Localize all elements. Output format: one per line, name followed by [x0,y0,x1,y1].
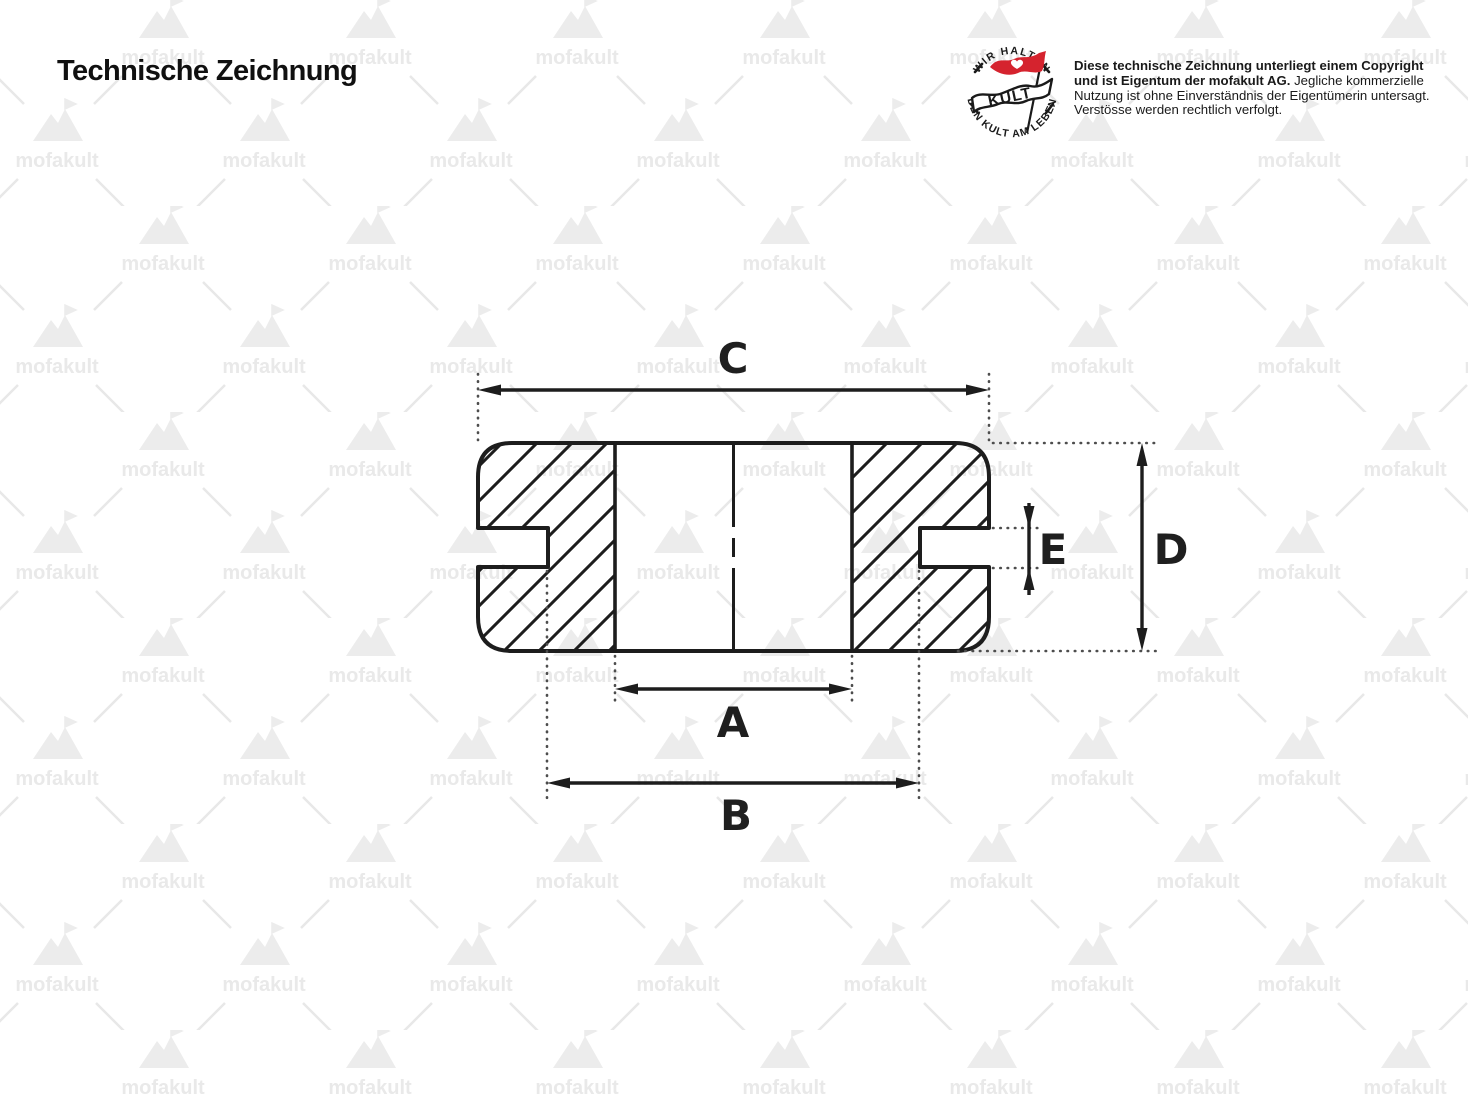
arrow-right-icon [966,385,989,396]
dimension-e: E [1024,503,1068,595]
arrow-up-icon [1137,443,1148,466]
dim-label-a: A [717,698,750,747]
arrow-right-icon [896,778,919,789]
dimension-b: B [547,778,919,841]
arrow-left-icon [478,385,501,396]
arrow-right-icon [829,684,852,695]
dim-label-c: C [718,334,749,383]
dimension-c: C [478,334,989,396]
arrow-down-icon [1137,628,1148,651]
dim-label-e: E [1039,525,1068,574]
arrow-left-icon [615,684,638,695]
dimension-a: A [615,684,852,748]
dim-label-d: D [1154,525,1189,574]
technical-drawing: C A B D E [0,0,1468,1101]
arrow-left-icon [547,778,570,789]
dim-label-b: B [720,791,752,840]
arrow-down-icon [1024,506,1035,528]
dimension-d: D [1137,443,1189,651]
arrow-up-icon [1024,568,1035,590]
page: mofakult Technische Zeichnung WIR HALTEN [0,0,1468,1101]
